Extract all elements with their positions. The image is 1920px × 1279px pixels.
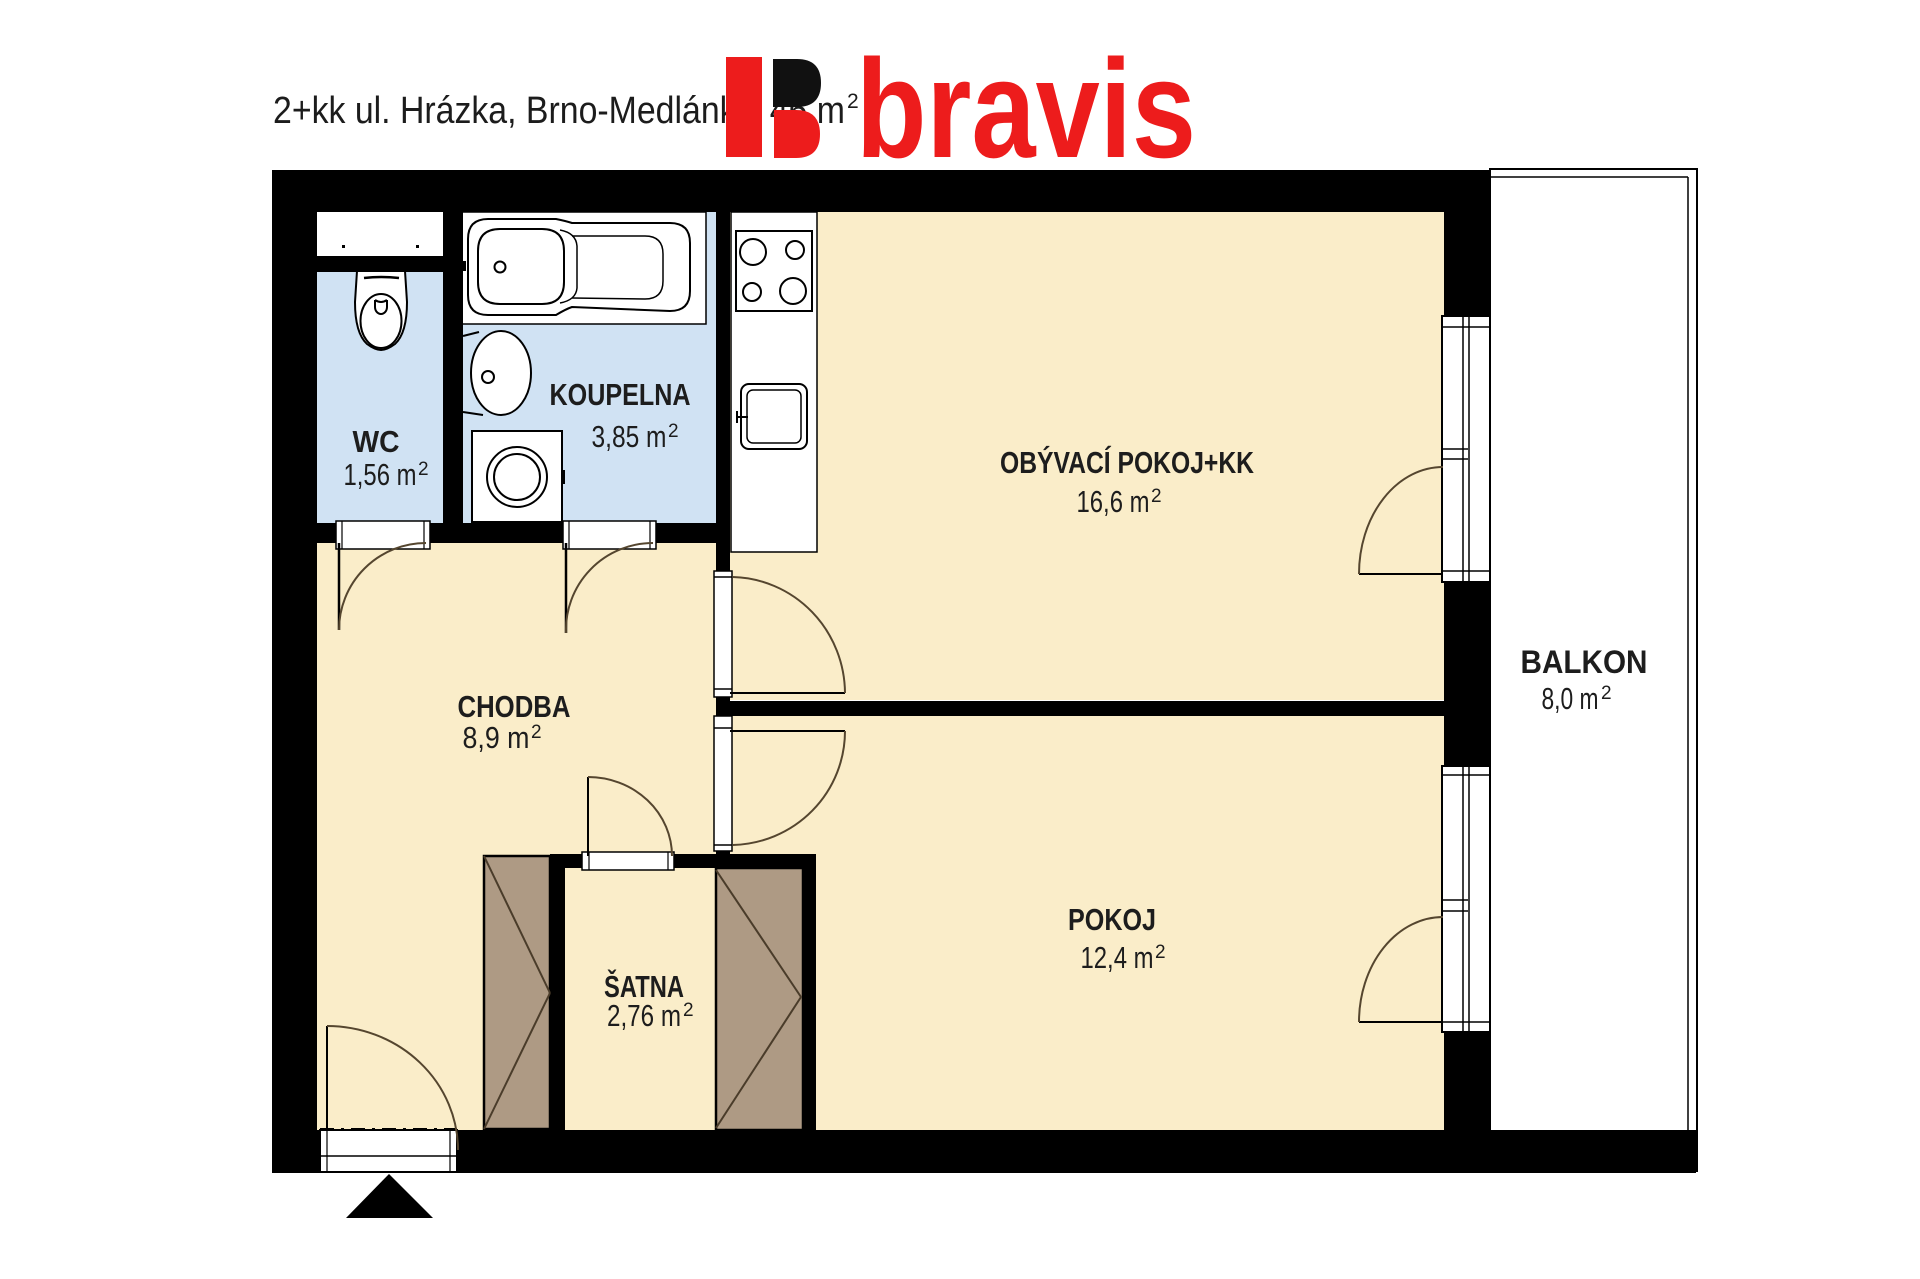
svg-text:CHODBA: CHODBA (458, 689, 571, 724)
svg-text:1,56 m: 1,56 m (344, 457, 417, 492)
svg-text:2,76 m: 2,76 m (607, 998, 681, 1033)
svg-text:bravis: bravis (856, 30, 1196, 187)
svg-text:2: 2 (418, 459, 429, 480)
svg-text:2: 2 (531, 722, 542, 743)
svg-text:16,6 m: 16,6 m (1077, 484, 1150, 519)
svg-text:OBÝVACÍ POKOJ+KK: OBÝVACÍ POKOJ+KK (1000, 445, 1254, 480)
svg-text:2: 2 (1151, 486, 1162, 507)
svg-text:BALKON: BALKON (1521, 644, 1648, 680)
svg-text:2: 2 (1155, 942, 1166, 963)
svg-text:3,85 m: 3,85 m (592, 419, 667, 454)
svg-text:12,4 m: 12,4 m (1081, 940, 1154, 975)
svg-text:2: 2 (668, 421, 679, 442)
svg-text:2: 2 (1601, 683, 1612, 704)
svg-text:KOUPELNA: KOUPELNA (550, 377, 691, 412)
svg-text:WC: WC (353, 424, 400, 459)
svg-text:8,9 m: 8,9 m (463, 720, 530, 755)
svg-text:2: 2 (683, 1000, 694, 1021)
svg-text:8,0 m: 8,0 m (1542, 681, 1599, 716)
svg-text:POKOJ: POKOJ (1068, 902, 1156, 937)
